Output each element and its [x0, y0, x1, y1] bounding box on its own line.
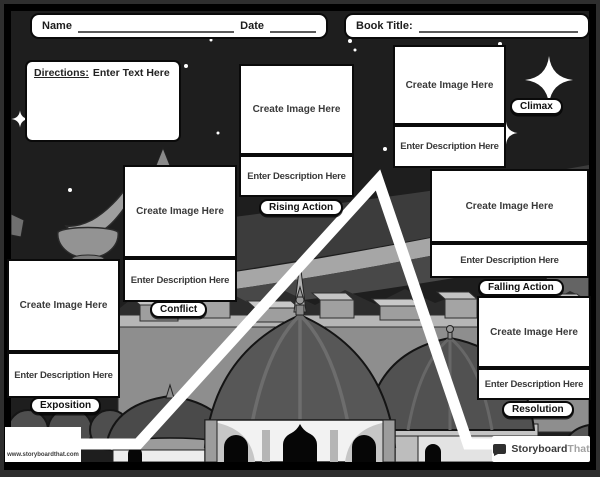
description-placeholder: Enter Description Here [14, 370, 113, 381]
worksheet-page: Name Date Book Title: Directions:Enter T… [0, 0, 600, 477]
label-exposition: Exposition [30, 397, 101, 414]
name-label: Name [42, 20, 72, 32]
name-date-box: Name Date [30, 13, 328, 39]
book-title-label: Book Title: [356, 20, 413, 32]
directions-box[interactable]: Directions:Enter Text Here [25, 60, 181, 142]
image-placeholder: Create Image Here [136, 206, 224, 217]
book-title-box: Book Title: [344, 13, 590, 39]
falling-action-image-box[interactable]: Create Image Here [430, 169, 589, 243]
website-url: www.storyboardthat.com [7, 452, 79, 462]
resolution-image-box[interactable]: Create Image Here [477, 296, 591, 368]
date-input-line[interactable] [270, 20, 316, 33]
storyboardthat-logo-icon [492, 443, 507, 456]
logo-text-secondary: That [567, 443, 589, 455]
name-input-line[interactable] [78, 20, 234, 33]
book-title-input-line[interactable] [419, 20, 578, 33]
description-placeholder: Enter Description Here [460, 255, 559, 266]
conflict-description-box[interactable]: Enter Description Here [123, 258, 237, 302]
exposition-image-box[interactable]: Create Image Here [7, 259, 120, 352]
rising-action-description-box[interactable]: Enter Description Here [239, 155, 354, 197]
exposition-description-box[interactable]: Enter Description Here [7, 352, 120, 398]
label-conflict: Conflict [150, 301, 207, 318]
climax-image-box[interactable]: Create Image Here [393, 45, 506, 125]
directions-label: Directions: [34, 67, 89, 79]
image-placeholder: Create Image Here [406, 80, 494, 91]
description-placeholder: Enter Description Here [400, 141, 499, 152]
resolution-description-box[interactable]: Enter Description Here [477, 368, 591, 400]
label-rising-action: Rising Action [259, 199, 343, 216]
description-placeholder: Enter Description Here [247, 171, 346, 182]
storyboardthat-logo: StoryboardThat [492, 436, 590, 462]
image-placeholder: Create Image Here [466, 201, 554, 212]
falling-action-description-box[interactable]: Enter Description Here [430, 243, 589, 278]
website-url-box: www.storyboardthat.com [5, 427, 81, 462]
climax-description-box[interactable]: Enter Description Here [393, 125, 506, 168]
description-placeholder: Enter Description Here [131, 275, 230, 286]
date-label: Date [240, 20, 264, 32]
label-falling-action: Falling Action [478, 279, 564, 296]
label-resolution: Resolution [502, 401, 574, 418]
logo-text-primary: Storyboard [511, 443, 567, 455]
image-placeholder: Create Image Here [253, 104, 341, 115]
conflict-image-box[interactable]: Create Image Here [123, 165, 237, 258]
image-placeholder: Create Image Here [490, 327, 578, 338]
directions-text: Enter Text Here [93, 67, 170, 79]
image-placeholder: Create Image Here [20, 300, 108, 311]
description-placeholder: Enter Description Here [485, 379, 584, 390]
rising-action-image-box[interactable]: Create Image Here [239, 64, 354, 155]
label-climax: Climax [510, 98, 563, 115]
